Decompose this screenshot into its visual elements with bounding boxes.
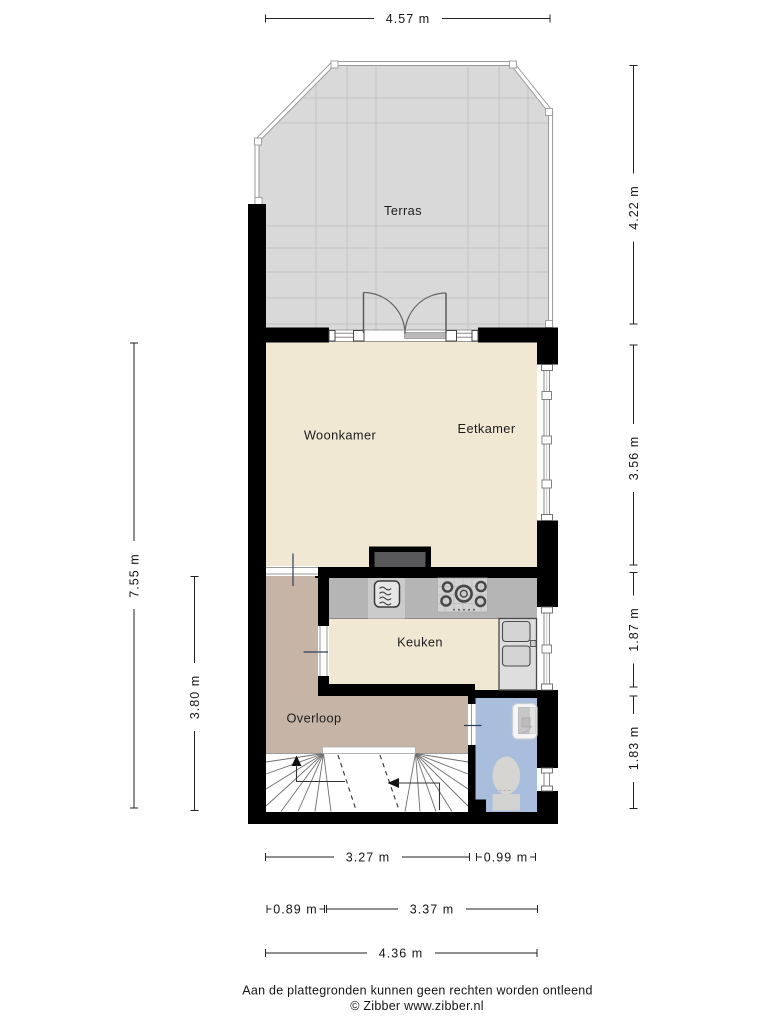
svg-text:Overloop: Overloop: [286, 711, 341, 726]
svg-text:3.80 m: 3.80 m: [188, 675, 202, 720]
svg-text:3.37 m: 3.37 m: [410, 902, 455, 916]
svg-text:1.83 m: 1.83 m: [627, 726, 641, 771]
svg-text:3.27 m: 3.27 m: [346, 850, 391, 864]
svg-text:Aan de plattegronden kunnen ge: Aan de plattegronden kunnen geen rechten…: [242, 984, 592, 998]
svg-text:© Zibber www.zibber.nl: © Zibber www.zibber.nl: [350, 999, 484, 1013]
svg-text:Terras: Terras: [384, 203, 422, 218]
svg-text:4.36 m: 4.36 m: [379, 946, 424, 960]
svg-text:1.87 m: 1.87 m: [627, 607, 641, 652]
svg-text:3.56 m: 3.56 m: [627, 436, 641, 481]
svg-text:4.57 m: 4.57 m: [386, 12, 431, 26]
svg-text:Eetkamer: Eetkamer: [458, 421, 516, 436]
svg-text:0.99 m: 0.99 m: [484, 850, 529, 864]
svg-text:Keuken: Keuken: [397, 635, 443, 650]
svg-text:0.89 m: 0.89 m: [273, 902, 318, 916]
svg-text:Woonkamer: Woonkamer: [304, 428, 377, 443]
svg-text:7.55 m: 7.55 m: [127, 553, 141, 598]
svg-text:4.22 m: 4.22 m: [627, 185, 641, 230]
